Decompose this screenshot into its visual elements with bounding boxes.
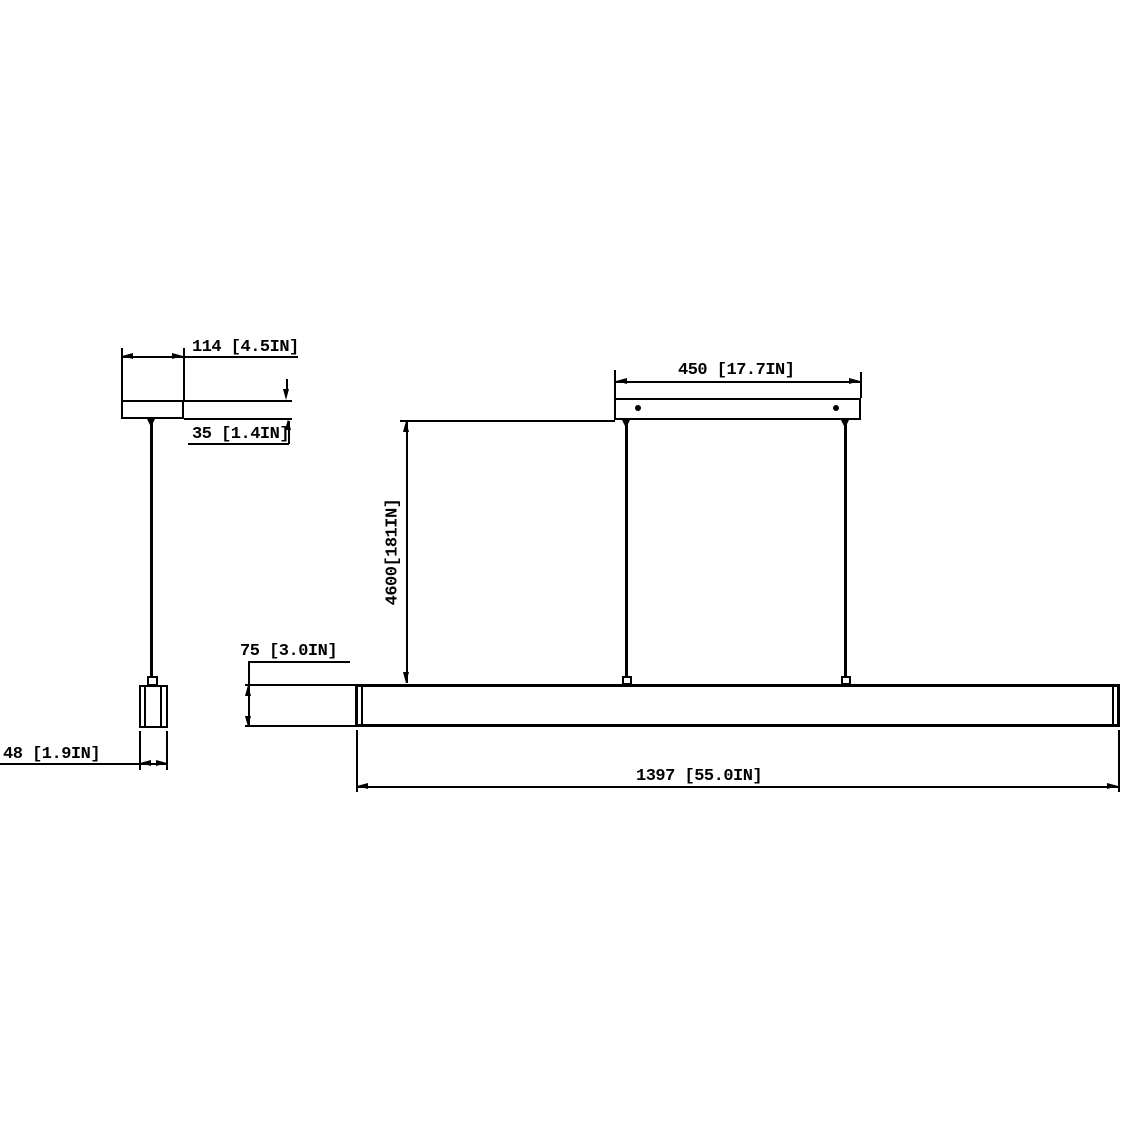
extension-line [400,420,615,422]
arrowhead-left [357,783,368,789]
cylinder-inner-edge [160,687,162,726]
extension-line [860,372,862,398]
extension-line [184,418,292,420]
extension-line [614,370,616,398]
extension-line [245,725,355,727]
suspension-height-label: 4600[181IN] [385,499,402,606]
mounting-screw [635,405,641,411]
arrowhead-right [156,760,167,766]
arrowhead-up [285,419,291,430]
extension-line [1118,730,1120,792]
fixture-height-label: 75 [3.0IN] [240,643,337,660]
front-canopy-width-label: 450 [17.7IN] [678,362,794,379]
arrowhead-down [283,389,289,400]
side-canopy-width-label: 114 [4.5IN] [192,339,299,356]
arrowhead-left [140,760,151,766]
cord-strain-relief [147,419,155,427]
mounting-screw [833,405,839,411]
leader-line [248,661,350,663]
cord-strain-relief [622,420,630,428]
extension-line [184,400,292,402]
dimension-line [356,786,1119,788]
arrowhead-up [245,685,251,696]
pendant-cord [150,419,153,678]
dimension-line [615,381,860,383]
arrowhead-left [122,353,133,359]
bar-end-cap [1112,687,1114,724]
arrowhead-right [1107,783,1118,789]
fixture-bar [355,684,1120,727]
suspension-cord-right [844,420,847,678]
dimension-line [406,421,408,683]
side-cylinder-width-label: 48 [1.9IN] [3,746,100,763]
bar-end-cap [361,687,363,724]
fixture-length-label: 1397 [55.0IN] [636,768,762,785]
side-canopy [121,400,184,419]
cord-strain-relief [841,420,849,428]
front-canopy [614,398,861,420]
suspension-cord-left [625,420,628,678]
arrowhead-down [403,672,409,683]
arrowhead-down [245,716,251,727]
dimension-drawing: 114 [4.5IN] 35 [1.4IN] 48 [1.9IN] [0,0,1128,1128]
cylinder-inner-edge [144,687,146,726]
leader-line [188,443,289,445]
arrowhead-up [403,421,409,432]
arrowhead-left [616,378,627,384]
arrowhead-right [172,353,183,359]
extension-line [245,684,355,686]
arrowhead-right [849,378,860,384]
side-canopy-height-label: 35 [1.4IN] [192,426,289,443]
